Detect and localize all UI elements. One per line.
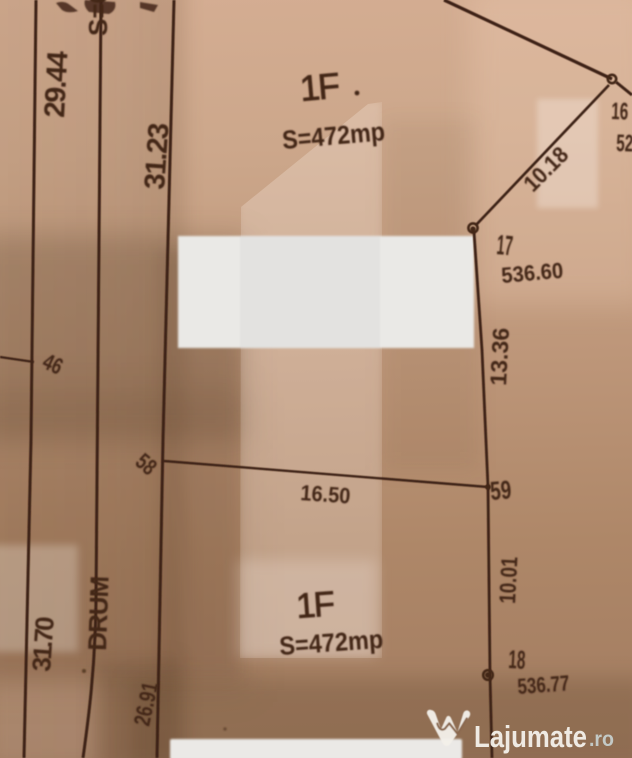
- svg-text:59: 59: [489, 474, 513, 506]
- svg-text:S=6: S=6: [83, 0, 113, 36]
- svg-text:52: 52: [616, 130, 632, 158]
- svg-text:18: 18: [508, 644, 527, 675]
- svg-text:13.36: 13.36: [485, 327, 514, 386]
- svg-text:10.18: 10.18: [518, 141, 573, 196]
- svg-text:1F: 1F: [295, 584, 335, 626]
- svg-text:17: 17: [495, 229, 514, 261]
- svg-text:29.44: 29.44: [39, 50, 74, 118]
- svg-text:1F: 1F: [298, 65, 340, 109]
- svg-text:.ro: .ro: [589, 728, 614, 751]
- svg-text:58: 58: [131, 448, 162, 480]
- svg-text:S=472mp: S=472mp: [278, 624, 384, 661]
- svg-text:16.50: 16.50: [300, 480, 352, 508]
- svg-text:DRUM: DRUM: [82, 576, 115, 651]
- svg-text:10.01: 10.01: [494, 556, 522, 604]
- svg-text:16: 16: [611, 98, 629, 126]
- svg-text:536.77: 536.77: [517, 670, 571, 699]
- svg-text:46: 46: [39, 348, 67, 380]
- svg-text:Lajumate: Lajumate: [474, 719, 587, 754]
- svg-text:31.23: 31.23: [139, 122, 176, 191]
- svg-text:31.70: 31.70: [26, 616, 60, 673]
- svg-text:536.60: 536.60: [500, 258, 564, 288]
- svg-text:S=472mp: S=472mp: [281, 116, 386, 155]
